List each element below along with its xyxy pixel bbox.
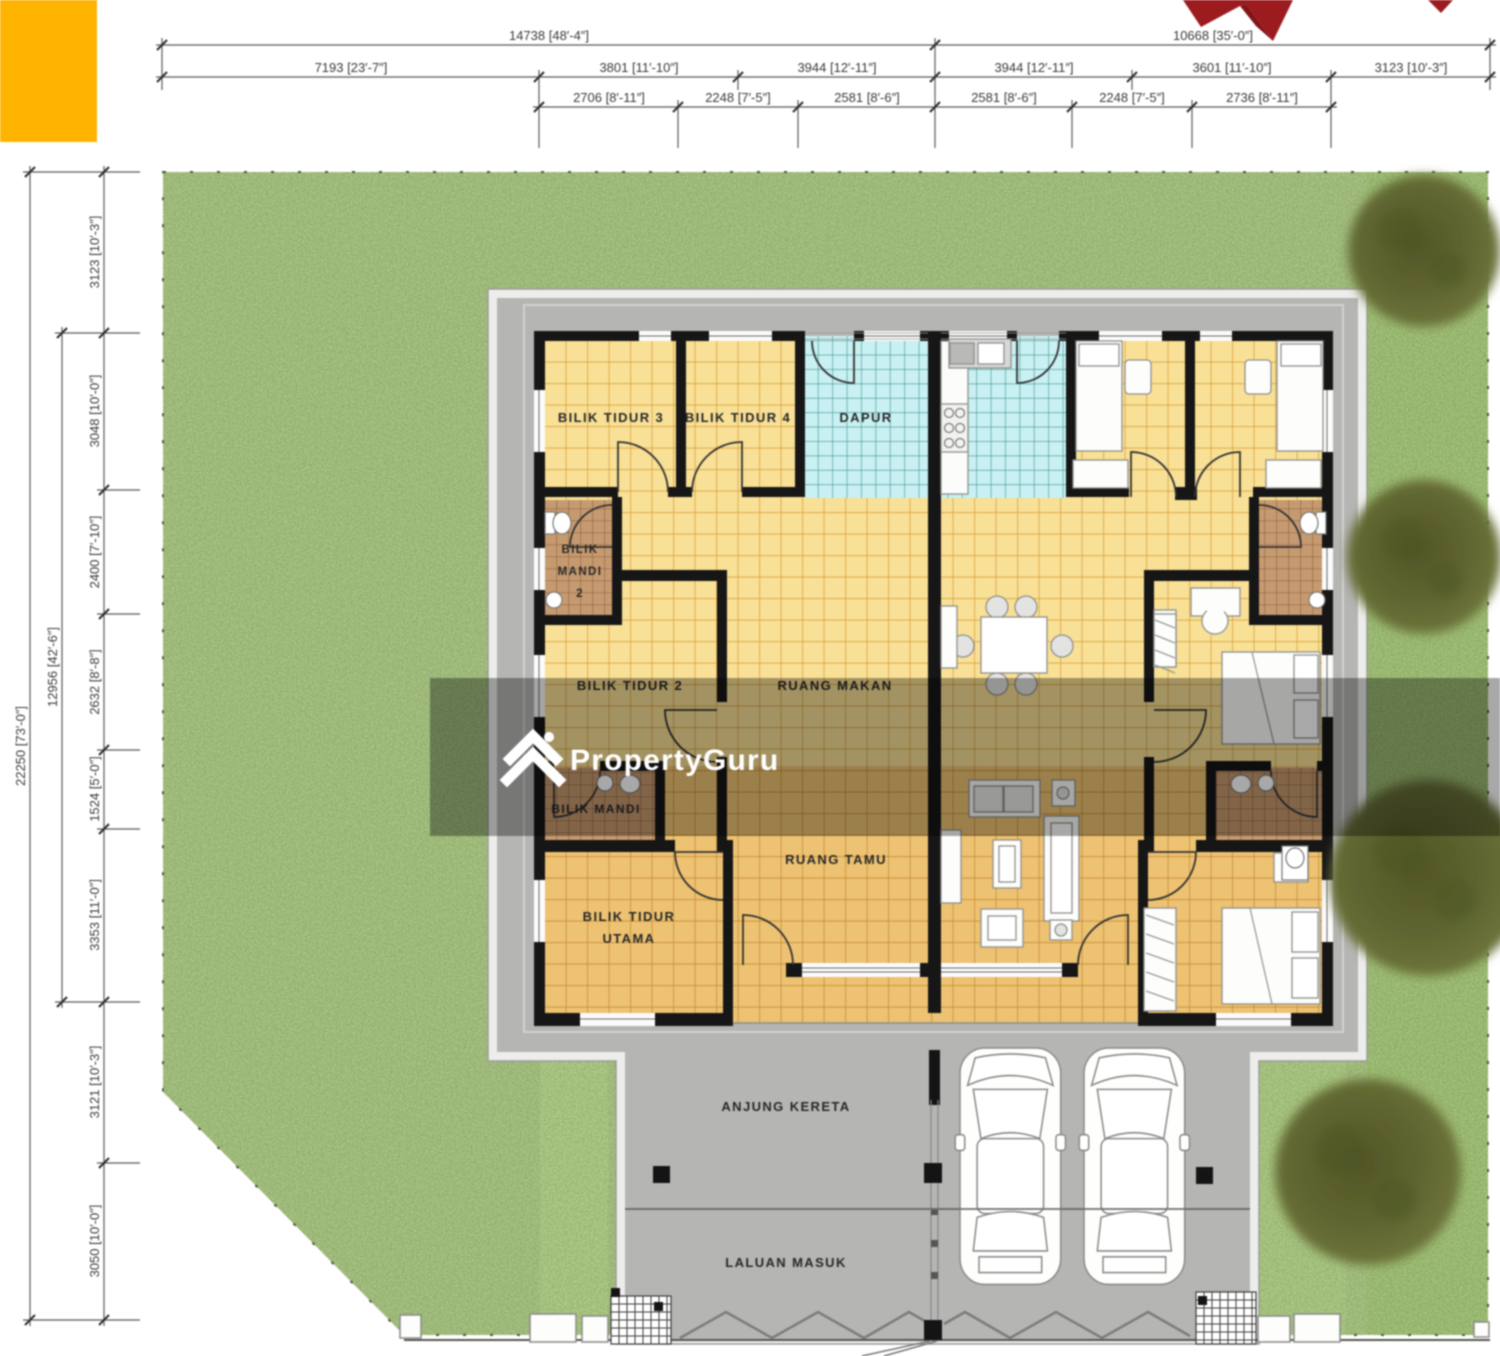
svg-text:UTAMA: UTAMA (603, 931, 656, 946)
svg-text:2400 [7′-10″]: 2400 [7′-10″] (87, 516, 102, 589)
svg-text:2581 [8′-6″]: 2581 [8′-6″] (971, 90, 1037, 105)
svg-text:ANJUNG KERETA: ANJUNG KERETA (721, 1099, 850, 1114)
svg-text:3050 [10′-0″]: 3050 [10′-0″] (87, 1205, 102, 1278)
svg-text:2632 [8′-8″]: 2632 [8′-8″] (87, 649, 102, 715)
svg-text:3121 [10′-3″]: 3121 [10′-3″] (87, 1046, 102, 1119)
svg-text:3353 [11′-0″]: 3353 [11′-0″] (87, 879, 102, 951)
svg-text:3944 [12′-11″]: 3944 [12′-11″] (797, 60, 876, 75)
svg-text:BILIK: BILIK (561, 544, 598, 556)
svg-text:BILIK TIDUR 4: BILIK TIDUR 4 (685, 410, 791, 425)
svg-text:7193 [23′-7″]: 7193 [23′-7″] (315, 60, 388, 75)
svg-text:3601 [11′-10″]: 3601 [11′-10″] (1192, 60, 1271, 75)
svg-text:3801 [11′-10″]: 3801 [11′-10″] (599, 60, 678, 75)
svg-text:12956 [42′-6″]: 12956 [42′-6″] (45, 627, 60, 707)
svg-text:LALUAN MASUK: LALUAN MASUK (725, 1255, 847, 1270)
svg-text:3123 [10′-3″]: 3123 [10′-3″] (1375, 60, 1448, 75)
svg-text:MANDI: MANDI (558, 566, 603, 578)
svg-text:BILIK TIDUR 3: BILIK TIDUR 3 (558, 410, 664, 425)
svg-text:2: 2 (576, 588, 584, 600)
svg-text:2248 [7′-5″]: 2248 [7′-5″] (1099, 90, 1165, 105)
svg-text:2581 [8′-6″]: 2581 [8′-6″] (834, 90, 900, 105)
svg-text:3123 [10′-3″]: 3123 [10′-3″] (87, 216, 102, 289)
svg-text:1524 [5′-0″]: 1524 [5′-0″] (87, 756, 102, 822)
svg-text:10668 [35′-0″]: 10668 [35′-0″] (1173, 28, 1253, 43)
svg-text:2248 [7′-5″]: 2248 [7′-5″] (705, 90, 771, 105)
svg-text:PropertyGuru: PropertyGuru (570, 744, 779, 777)
svg-text:3944 [12′-11″]: 3944 [12′-11″] (994, 60, 1073, 75)
svg-text:22250 [73′-0″]: 22250 [73′-0″] (13, 706, 28, 786)
svg-text:14738 [48′-4″]: 14738 [48′-4″] (509, 28, 589, 43)
svg-text:2706 [8′-11″]: 2706 [8′-11″] (573, 90, 645, 105)
svg-text:RUANG TAMU: RUANG TAMU (785, 852, 887, 867)
svg-text:2736 [8′-11″]: 2736 [8′-11″] (1226, 90, 1298, 105)
svg-text:DAPUR: DAPUR (839, 410, 892, 425)
svg-text:BILIK TIDUR: BILIK TIDUR (583, 909, 676, 924)
svg-text:3048 [10′-0″]: 3048 [10′-0″] (87, 375, 102, 448)
